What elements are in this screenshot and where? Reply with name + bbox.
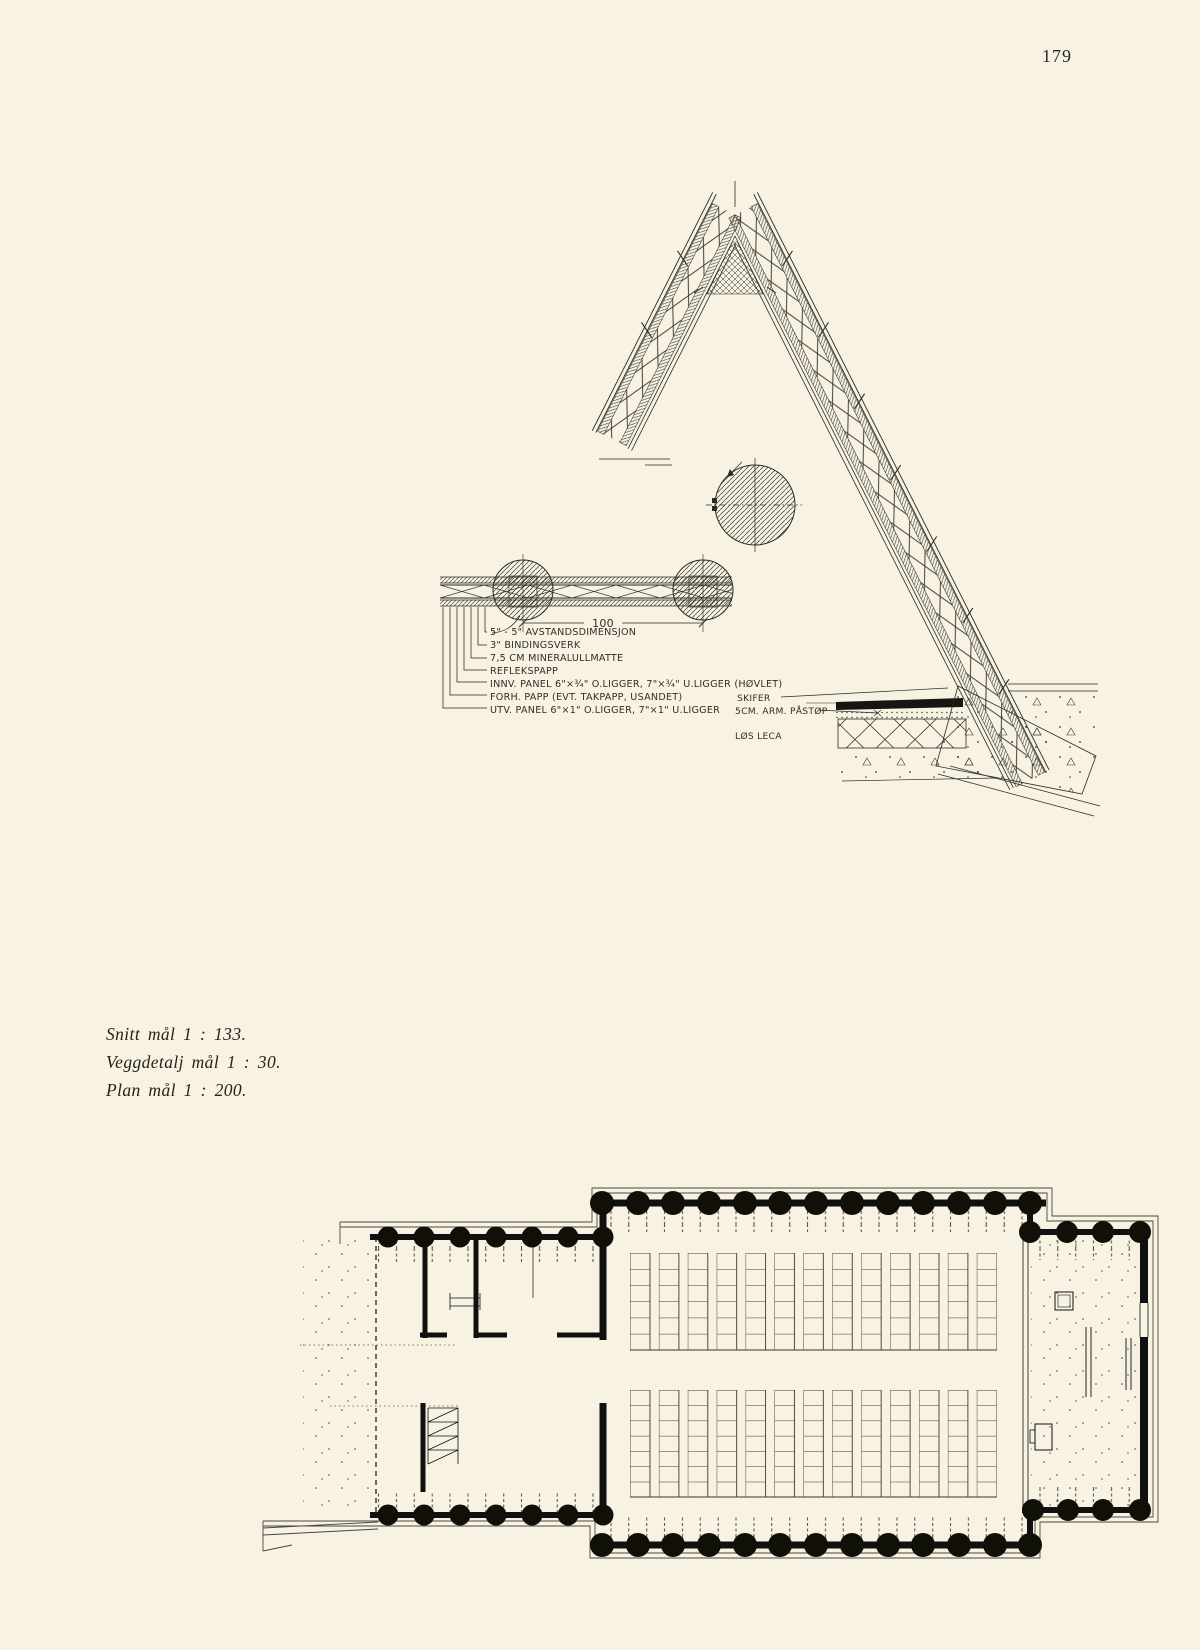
column	[733, 1191, 757, 1215]
column	[522, 1505, 543, 1526]
foundation-detail	[781, 684, 1100, 816]
column	[414, 1227, 435, 1248]
column	[486, 1227, 507, 1248]
column	[626, 1191, 650, 1215]
column	[733, 1533, 757, 1557]
column	[983, 1533, 1007, 1557]
pews-lower	[630, 1390, 997, 1497]
column	[593, 1505, 614, 1526]
column	[876, 1533, 900, 1557]
column	[1019, 1221, 1041, 1243]
column	[450, 1505, 471, 1526]
column	[1092, 1499, 1114, 1521]
layer-label: INNV. PANEL 6"×¾" O.LIGGER, 7"×¾" U.LIGG…	[490, 678, 782, 690]
column	[840, 1533, 864, 1557]
column	[378, 1505, 399, 1526]
column	[1129, 1221, 1151, 1243]
column	[804, 1533, 828, 1557]
column	[661, 1533, 685, 1557]
a-frame-section: 100 5" - 5" AVSTANDSDIMENSJON 3" BINDING…	[440, 181, 1100, 816]
column	[661, 1191, 685, 1215]
column	[697, 1191, 721, 1215]
pews-upper	[630, 1253, 997, 1350]
column	[558, 1227, 579, 1248]
column	[414, 1505, 435, 1526]
foundation-labels: SKIFER 5CM. ARM. PÅSTØP LØS LECA	[735, 693, 828, 742]
column	[1018, 1191, 1042, 1215]
column	[593, 1227, 614, 1248]
column	[1022, 1499, 1044, 1521]
column	[558, 1505, 579, 1526]
column	[1057, 1499, 1079, 1521]
left-leg-cut-mask	[586, 459, 688, 497]
layer-label: FORH. PAPP (EVT. TAKPAPP, USANDET)	[490, 692, 682, 703]
column	[590, 1191, 614, 1215]
floor-plan	[263, 1188, 1158, 1558]
column	[450, 1227, 471, 1248]
column	[947, 1533, 971, 1557]
column	[768, 1533, 792, 1557]
left-leg	[588, 190, 752, 450]
foundation-label: SKIFER	[737, 693, 771, 704]
column	[768, 1191, 792, 1215]
column	[911, 1533, 935, 1557]
column	[1018, 1533, 1042, 1557]
column	[522, 1227, 543, 1248]
coat-rack	[428, 1408, 458, 1464]
layer-label: 5" - 5" AVSTANDSDIMENSJON	[490, 627, 636, 638]
book-page: 179 Snitt mål 1 : 133. Veggdetalj mål 1 …	[0, 0, 1200, 1650]
column	[590, 1533, 614, 1557]
foundation-label: LØS LECA	[735, 731, 782, 742]
column	[911, 1191, 935, 1215]
pole-detail	[706, 458, 802, 552]
interior-partitions	[420, 1237, 603, 1492]
column	[378, 1227, 399, 1248]
column	[1129, 1499, 1151, 1521]
layer-label: UTV. PANEL 6"×1" O.LIGGER, 7"×1" U.LIGGE…	[490, 705, 720, 716]
column	[804, 1191, 828, 1215]
column	[697, 1533, 721, 1557]
architectural-drawing: 100 5" - 5" AVSTANDSDIMENSJON 3" BINDING…	[0, 0, 1200, 1650]
column	[983, 1191, 1007, 1215]
terrace-stipple	[303, 1240, 373, 1512]
chancel-step-lines	[1023, 1232, 1028, 1510]
column	[947, 1191, 971, 1215]
layer-label: REFLEKSPAPP	[490, 666, 558, 677]
column	[876, 1191, 900, 1215]
layer-label: 3" BINDINGSVERK	[490, 640, 581, 651]
layer-label: 7,5 CM MINERALULLMATTE	[490, 653, 623, 664]
layer-leader-lines	[443, 607, 487, 708]
chancel-door-opening	[1140, 1303, 1148, 1337]
foundation-label: 5CM. ARM. PÅSTØP	[735, 705, 828, 717]
column	[840, 1191, 864, 1215]
column	[1056, 1221, 1078, 1243]
column	[486, 1505, 507, 1526]
wall-detail-band	[440, 554, 733, 633]
column	[1092, 1221, 1114, 1243]
column	[626, 1533, 650, 1557]
terrace-steps	[263, 1522, 378, 1535]
